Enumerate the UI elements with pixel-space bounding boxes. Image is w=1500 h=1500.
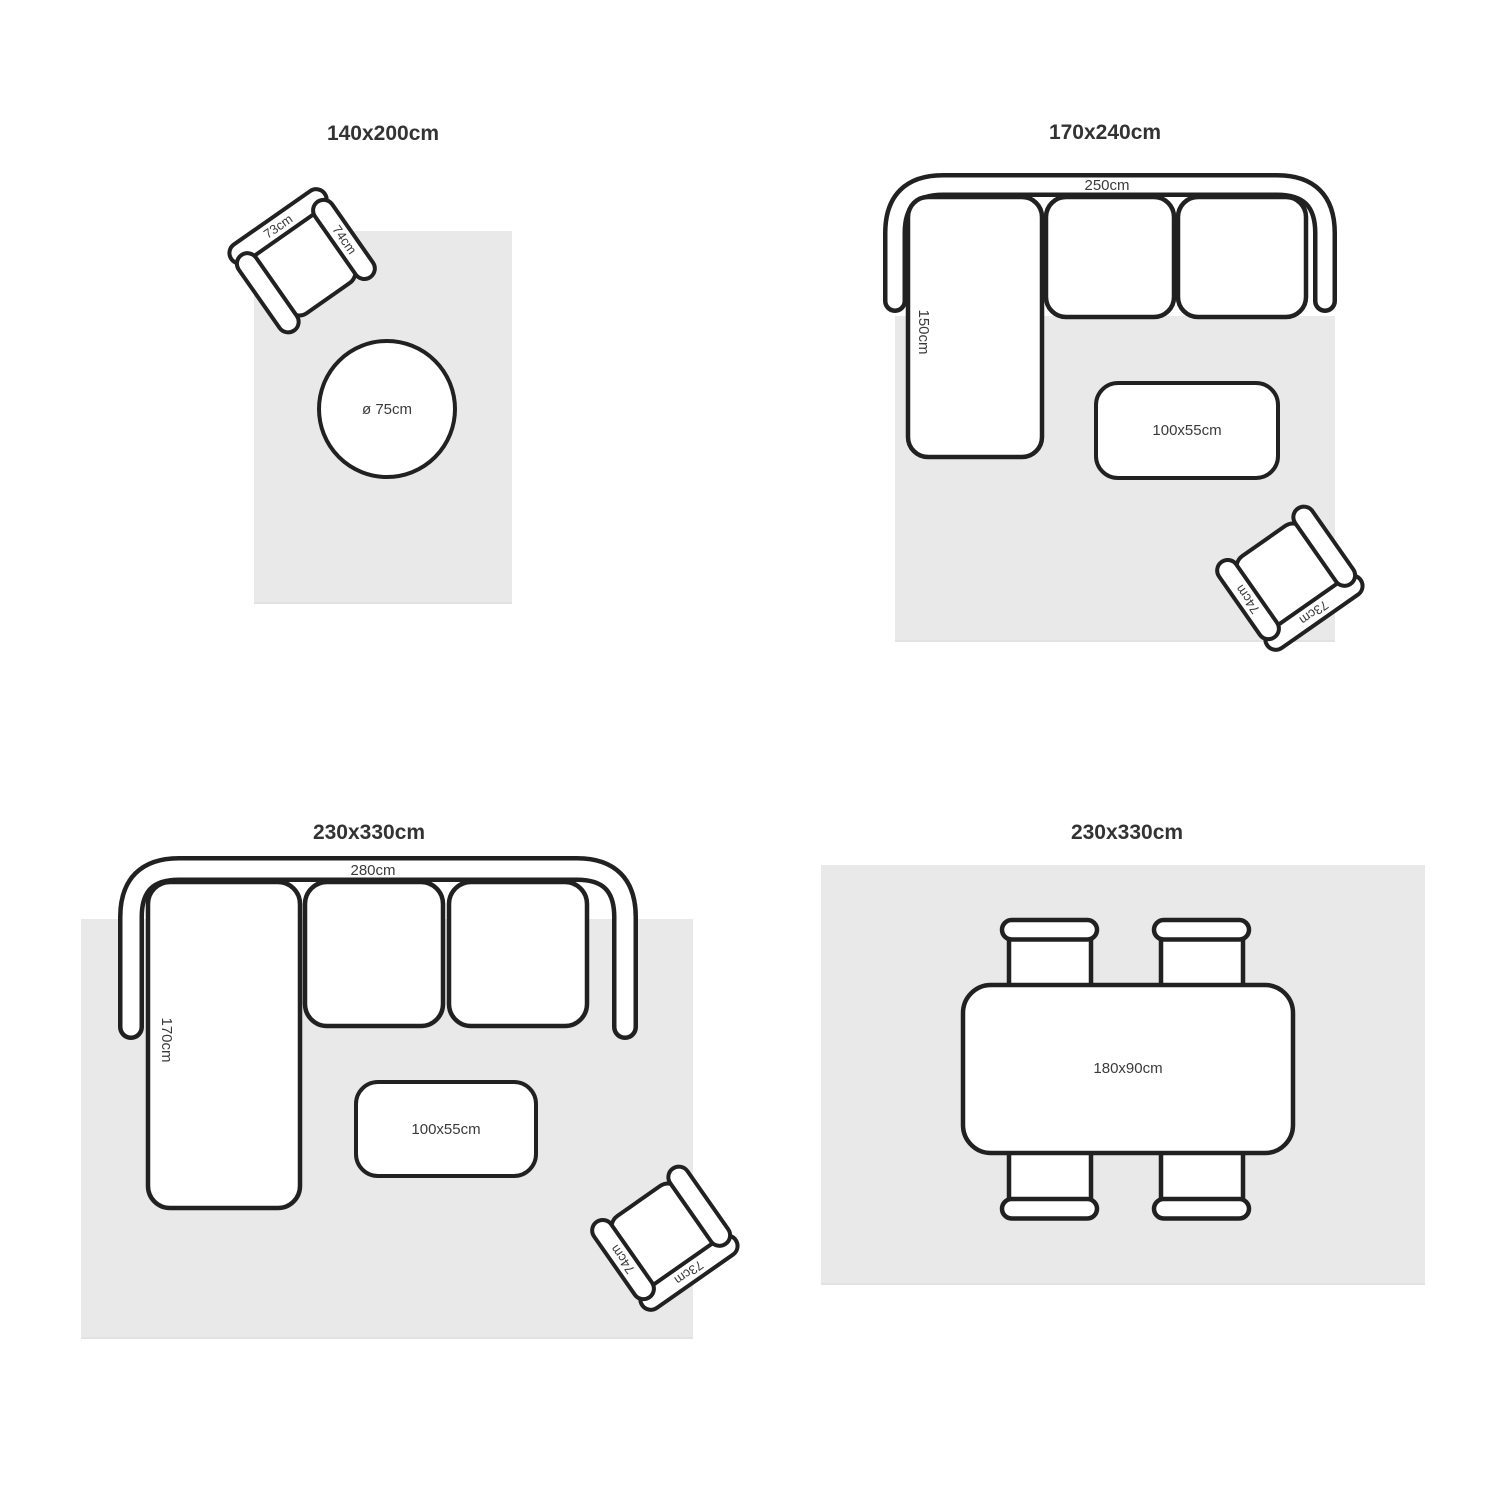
coffee-table: 100x55cm <box>354 1080 538 1178</box>
dining-chair-back <box>1002 920 1097 940</box>
sofa-seat-cushion <box>1178 197 1306 317</box>
dining-chair-back <box>1154 920 1249 940</box>
panel-230x330-sofa: 230x330cm 280cm 170cm 100x55cm 73cm 74cm <box>0 750 750 1500</box>
coffee-table-label: 100x55cm <box>1152 422 1221 439</box>
round-side-table: ø 75cm <box>317 339 457 479</box>
panel-140x200: 140x200cm 73cm 74cm ø 75cm <box>0 0 750 750</box>
panel-title: 230x330cm <box>987 820 1267 846</box>
round-table-label: ø 75cm <box>362 401 412 418</box>
panel-230x330-dining: 230x330cm 180x90cm <box>750 750 1500 1500</box>
sofa-seat-cushion <box>449 882 587 1026</box>
panel-title: 140x200cm <box>243 121 523 147</box>
sofa-seat-cushion <box>305 882 443 1026</box>
dining-chair-back <box>1154 1199 1249 1219</box>
coffee-table: 100x55cm <box>1094 381 1280 480</box>
dining-table-label: 180x90cm <box>1028 1059 1228 1079</box>
coffee-table-label: 100x55cm <box>411 1121 480 1138</box>
panel-title: 170x240cm <box>965 120 1245 146</box>
sofa-seat-cushion <box>1046 197 1174 317</box>
sofa-depth-label: 170cm <box>156 1000 176 1080</box>
sofa-width-label: 280cm <box>293 861 453 881</box>
sofa-depth-label: 150cm <box>913 292 933 372</box>
panel-170x240: 170x240cm 250cm 150cm 100x55cm 73cm 74cm <box>750 0 1500 750</box>
rug-size-guide: 140x200cm 73cm 74cm ø 75cm 170x240cm <box>0 0 1500 1500</box>
dining-chair-back <box>1002 1199 1097 1219</box>
sofa-width-label: 250cm <box>1027 176 1187 196</box>
